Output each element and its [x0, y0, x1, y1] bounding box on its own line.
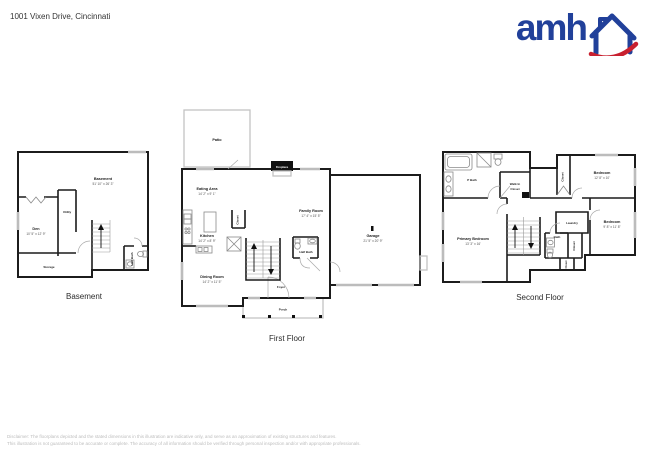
room-label-walk-in-1: Walk In — [510, 182, 521, 186]
chase-block — [522, 192, 529, 198]
room-label-foyer: Foyer — [277, 285, 286, 289]
room-dims-garage: 21' 5" x 20' 9" — [363, 239, 382, 243]
room-dims-bedroom-bottom: 9' 8" x 11' 8" — [603, 225, 620, 229]
basement-outer-wall — [18, 152, 148, 277]
basement-plan: Basement 51' 10" x 26' 3" Den 10' 5" x 1… — [18, 152, 148, 301]
garage-walls — [330, 175, 420, 285]
floor-label-second: Second Floor — [516, 293, 564, 302]
room-dims-primary-bedroom: 13' 3" x 16' — [465, 242, 481, 246]
first-floor-plan: Fireplace — [182, 110, 427, 343]
room-label-bedroom-bottom: Bedroom — [604, 220, 621, 224]
disclaimer-line-2: This illustration is not guaranteed to b… — [7, 440, 361, 447]
room-label-closet-bottom: Closet — [564, 260, 568, 268]
room-dims-kitchen: 14' 2" x 8' 9" — [198, 239, 215, 243]
disclaimer: Disclaimer: The floorplans depicted and … — [7, 433, 361, 447]
room-label-kitchen: Kitchen — [200, 234, 215, 238]
room-label-storage: Storage — [43, 265, 55, 269]
room-label-porch: Porch — [279, 308, 288, 312]
room-label-first-half-bath: Half Bath — [299, 250, 312, 254]
garage-side-stoop — [420, 256, 427, 270]
second-floor-plan: P Bath Walk In Closet Primary Bedroom 13… — [443, 152, 635, 302]
room-dims-family-room: 17' 4" x 15' 5" — [301, 214, 320, 218]
porch-post — [319, 315, 322, 318]
room-dims-dining-room: 14' 2" x 11' 5" — [202, 280, 221, 284]
room-label-fireplace: Fireplace — [276, 165, 289, 169]
room-label-garage: Garage — [366, 234, 379, 238]
room-label-bath: Bath — [554, 235, 561, 239]
room-label-den: Den — [32, 227, 40, 231]
floor-label-first: First Floor — [269, 334, 305, 343]
porch-post — [292, 315, 295, 318]
room-label-basement-half-bath: Half Bath — [130, 252, 134, 265]
porch-post — [268, 315, 271, 318]
room-label-closet-mid: Closet — [572, 241, 576, 250]
disclaimer-line-1: Disclaimer: The floorplans depicted and … — [7, 433, 361, 440]
room-label-primary-bedroom: Primary Bedroom — [457, 237, 489, 241]
floorplan-canvas: Basement 51' 10" x 26' 3" Den 10' 5" x 1… — [0, 0, 650, 460]
room-dims-den: 10' 5" x 12' 9" — [26, 232, 45, 236]
room-label-laundry: Laundry — [566, 221, 578, 225]
room-label-bedroom-top: Bedroom — [594, 171, 611, 175]
room-label-utility: Utility — [63, 210, 72, 214]
room-dims-bedroom-top: 12' 8" x 10' — [594, 176, 610, 180]
room-label-family-room: Family Room — [299, 209, 323, 213]
room-dims-basement: 51' 10" x 26' 3" — [92, 182, 113, 186]
room-label-closet-top: Closet — [561, 172, 565, 181]
room-dims-eating-area: 14' 2" x 9' 1" — [198, 192, 215, 196]
room-label-walk-in-2: Closet — [510, 187, 519, 191]
room-label-p-bath: P Bath — [467, 178, 477, 182]
room-label-dining-room: Dining Room — [200, 275, 224, 279]
floor-label-basement: Basement — [66, 292, 103, 301]
room-label-eating-area: Eating Area — [197, 187, 219, 191]
garage-post — [371, 226, 374, 231]
room-label-first-closet: Closet — [236, 215, 240, 224]
room-label-patio: Patio — [212, 138, 222, 142]
room-label-basement: Basement — [94, 177, 113, 181]
porch-post — [242, 315, 245, 318]
